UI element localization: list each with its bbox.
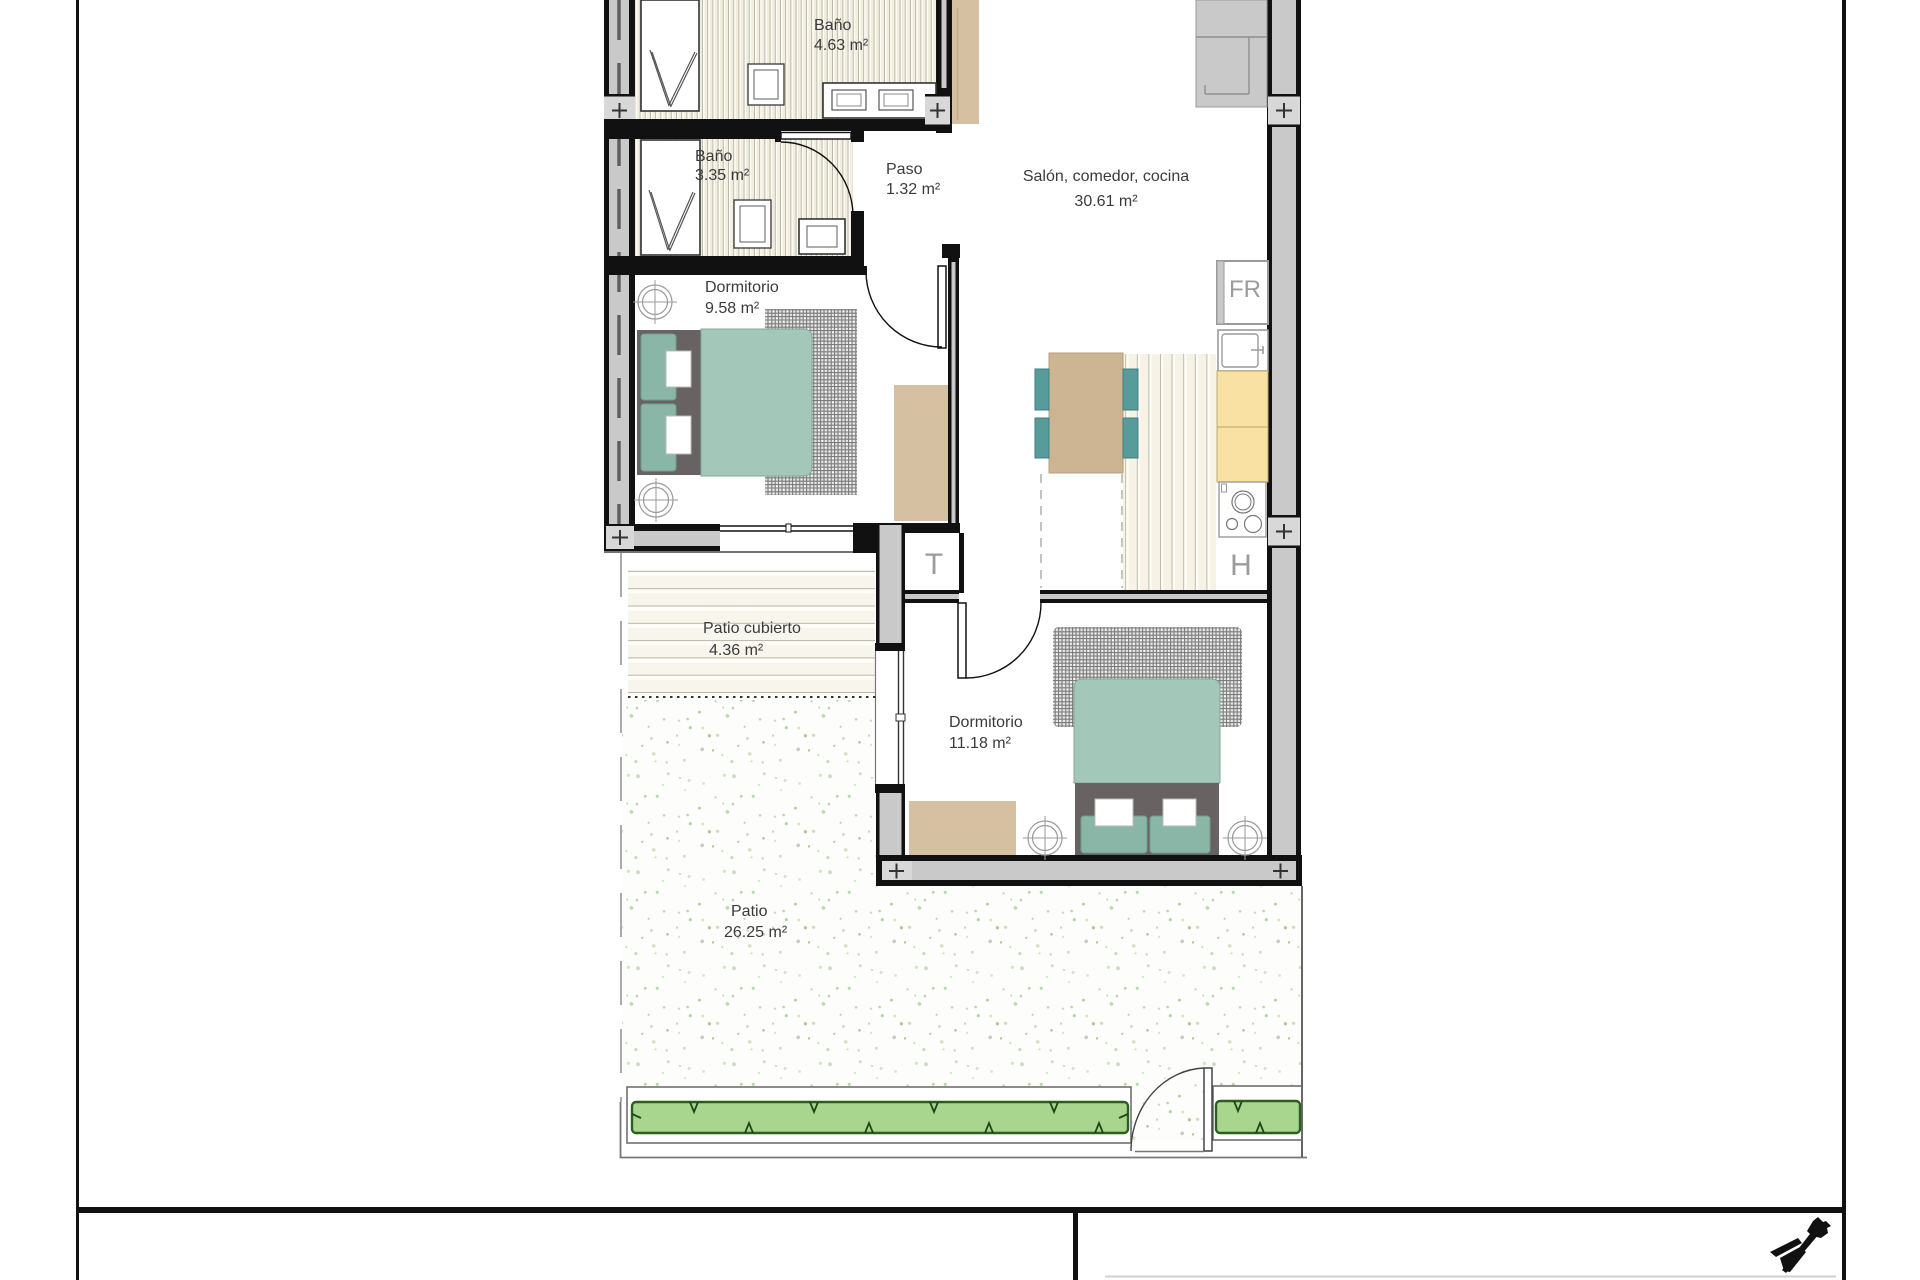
- svg-text:Salón, comedor, cocina: Salón, comedor, cocina: [1023, 168, 1189, 185]
- svg-text:T: T: [925, 548, 943, 581]
- svg-text:H: H: [1230, 549, 1252, 582]
- svg-text:Paso: Paso: [886, 161, 923, 178]
- svg-text:30.61 m²: 30.61 m²: [1074, 193, 1138, 210]
- svg-text:Patio cubierto: Patio cubierto: [703, 620, 801, 637]
- svg-text:Patio: Patio: [731, 903, 768, 920]
- svg-text:9.58 m²: 9.58 m²: [705, 300, 760, 317]
- svg-text:Baño: Baño: [695, 148, 732, 165]
- svg-text:1.32 m²: 1.32 m²: [886, 181, 941, 198]
- svg-text:11.18 m²: 11.18 m²: [949, 735, 1012, 752]
- svg-text:Baño: Baño: [814, 17, 851, 34]
- svg-text:4.36 m²: 4.36 m²: [709, 642, 764, 659]
- svg-text:26.25 m²: 26.25 m²: [724, 924, 788, 941]
- svg-text:3.35 m²: 3.35 m²: [695, 167, 750, 184]
- svg-text:Dormitorio: Dormitorio: [949, 714, 1023, 731]
- svg-text:4.63 m²: 4.63 m²: [814, 37, 869, 54]
- svg-text:Dormitorio: Dormitorio: [705, 279, 779, 296]
- svg-text:FR: FR: [1229, 276, 1261, 303]
